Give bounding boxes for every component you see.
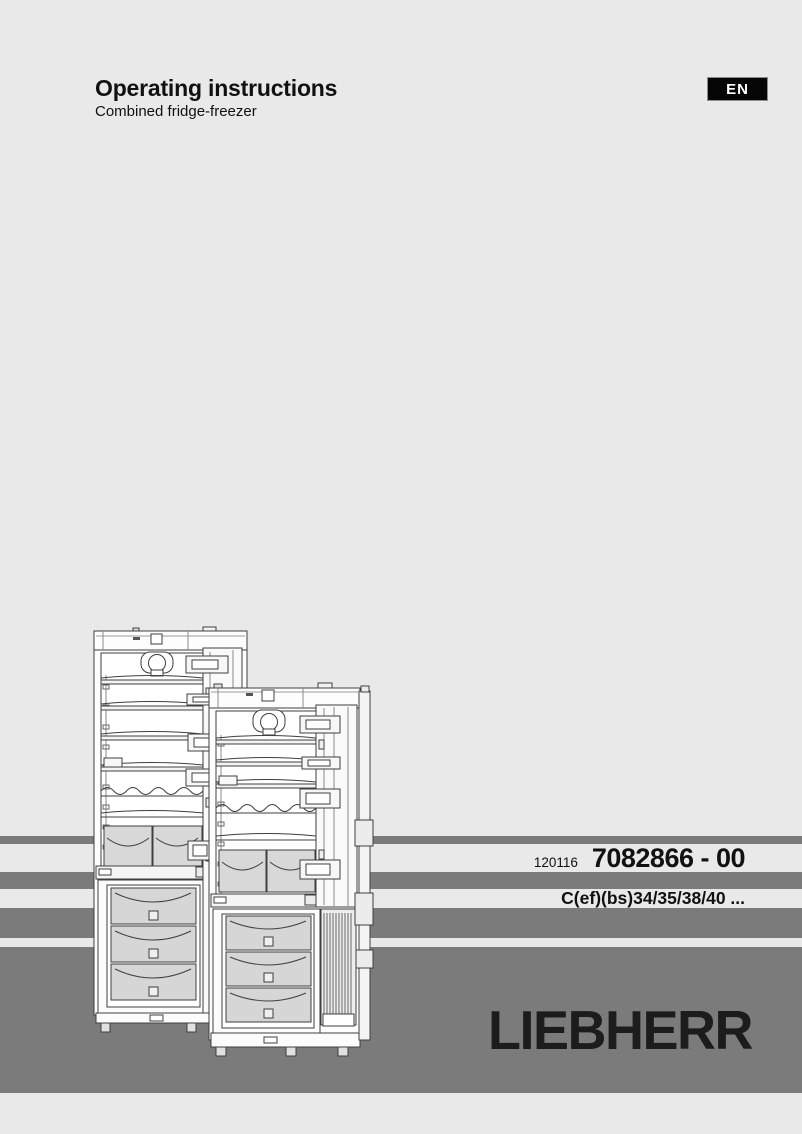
document-number: 7082866 - 00 xyxy=(592,844,745,872)
header: Operating instructions Combined fridge-f… xyxy=(95,75,337,121)
right-fridge-unit xyxy=(209,683,373,1056)
language-badge: EN xyxy=(707,77,768,101)
left-freezer-drawers xyxy=(98,880,207,1013)
left-fan xyxy=(141,652,173,676)
page-title: Operating instructions xyxy=(95,75,337,101)
right-freezer-drawers xyxy=(213,909,320,1033)
manual-cover-page: { "header": { "title": "Operating instru… xyxy=(0,0,802,1134)
model-range: C(ef)(bs)34/35/38/40 ... xyxy=(561,888,745,908)
document-number-row: 120116 7082866 - 00 xyxy=(534,844,745,872)
right-fan xyxy=(253,710,285,735)
language-badge-label: EN xyxy=(726,81,749,98)
fridge-freezer-illustration xyxy=(85,620,385,1065)
print-code: 120116 xyxy=(534,849,578,877)
liebherr-logo: LIEBHERR xyxy=(488,1003,752,1058)
freezer-door-ribbed-panel xyxy=(321,909,356,1026)
page-subtitle: Combined fridge-freezer xyxy=(95,103,337,121)
left-crisper-drawers xyxy=(104,826,202,866)
